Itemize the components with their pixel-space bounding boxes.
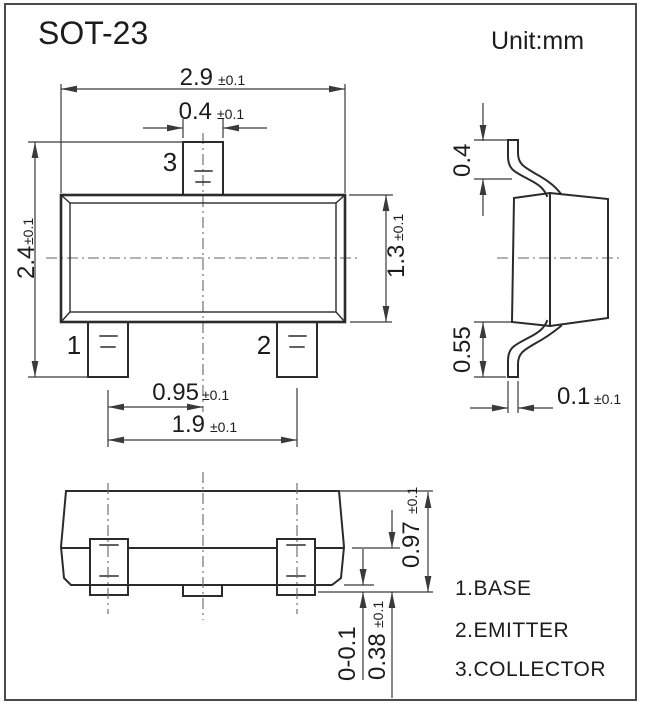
dim-lead-top-value: 0.4 [449,144,476,177]
dim-body-width-value: 2.9 [180,64,213,91]
dim-lead-bottom-value: 0.55 [449,326,476,373]
dim-lead-pitch-value: 0.95 [152,379,199,406]
front-lead-1-marks [100,336,117,347]
pin-legend: 1.BASE 2.EMITTER 3.COLLECTOR [455,577,606,681]
page-title: SOT-23 [38,15,148,51]
side-view: 0.4 0.55 0.1 ±0.1 [449,103,622,413]
dim-lead-thickness-tol: ±0.1 [594,391,621,407]
dim-lead3-width: 0.4 ±0.1 [143,98,267,138]
dim-standoff: 0-0.1 [334,549,367,681]
bottom-centerlines [108,472,297,620]
dim-lead-height: 0.38 ±0.1 [364,510,395,698]
dim-arrow [492,405,534,412]
legend-item-emitter: 2.EMITTER [455,619,569,642]
pin2-label: 2 [257,330,271,360]
bottom-pad-2 [277,539,315,595]
dim-lead-pitch-tol: ±0.1 [202,387,229,403]
dim-body-height-value: 1.3 [383,245,410,278]
dim-lead-pitch: 0.95 ±0.1 [108,379,229,447]
dim-lead-thickness-value: 0.1 [557,383,590,410]
dim-total-height-value: 2.4 [13,246,40,279]
pin3-label: 3 [163,147,177,177]
package-drawing-page: SOT-23 Unit:mm 3 1 2 2.9 ±0.1 [0,0,645,715]
front-view: 3 1 2 2.9 ±0.1 0.4 ±0.1 2.4 ±0.1 1. [13,64,410,447]
dim-lead-height-value: 0.38 [364,633,391,680]
legend-item-collector: 3.COLLECTOR [455,658,606,681]
dim-lead3-width-value: 0.4 [179,98,212,125]
dim-total-height-tol: ±0.1 [20,218,36,245]
dim-total-height: 2.4 ±0.1 [13,142,183,377]
dim-arrow [389,532,396,608]
dim-body-height-tol: ±0.1 [390,214,406,241]
dim-lead-span-value: 1.9 [172,411,205,438]
pin1-label: 1 [67,330,81,360]
dim-lead-height-tol: ±0.1 [370,601,386,628]
front-lead-2 [277,322,317,377]
side-lead-bottom [508,321,561,377]
side-lead-top [508,140,561,196]
dim-arrow [167,125,239,132]
dim-lead3-width-tol: ±0.1 [217,106,244,122]
dim-lead-top: 0.4 [449,103,512,216]
dim-body-width: 2.9 ±0.1 [61,64,345,193]
sot23-outline-drawing: SOT-23 Unit:mm 3 1 2 2.9 ±0.1 [0,0,645,715]
front-lead-1 [88,322,128,377]
dim-lead-bottom: 0.55 [449,322,511,377]
dim-lead-thickness: 0.1 ±0.1 [470,381,621,413]
legend-item-base: 1.BASE [455,577,532,600]
front-lead-2-marks [289,336,306,347]
dim-lead-span-tol: ±0.1 [210,419,237,435]
dim-body-height: 1.3 ±0.1 [349,195,410,322]
dim-height-total: 0.97 ±0.1 [398,487,431,592]
bottom-pad-1 [90,539,128,595]
dim-height-total-value: 0.97 [398,521,425,568]
unit-label: Unit:mm [491,27,584,55]
dim-height-total-tol: ±0.1 [404,487,420,514]
side-body [512,193,608,326]
dim-arrow [360,569,367,608]
bottom-view: 0.97 ±0.1 0.38 ±0.1 0-0.1 [61,472,433,698]
dim-standoff-value: 0-0.1 [334,626,361,681]
dim-body-width-tol: ±0.1 [218,72,245,88]
dim-arrow [480,125,487,195]
